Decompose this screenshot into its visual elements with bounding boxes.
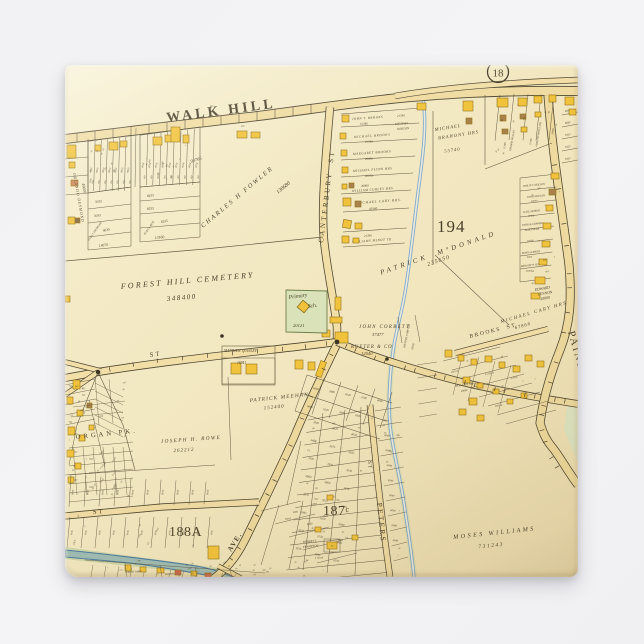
svg-text:175: 175: [253, 574, 256, 576]
svg-text:8435: 8435: [147, 193, 155, 198]
svg-text:84: 84: [253, 569, 255, 572]
svg-text:ST: ST: [149, 351, 161, 359]
svg-text:21786: 21786: [365, 139, 373, 144]
svg-text:21780: 21780: [364, 233, 372, 238]
svg-text:20121: 20121: [293, 323, 304, 328]
svg-text:45: 45: [209, 565, 211, 568]
svg-text:3035: 3035: [95, 199, 103, 204]
svg-text:JOHN CORBETT: JOHN CORBETT: [359, 325, 410, 330]
svg-text:RUETER & CO: RUETER & CO: [350, 345, 393, 350]
svg-text:3035: 3035: [94, 213, 102, 218]
svg-text:37477: 37477: [372, 332, 384, 337]
svg-text:30: 30: [178, 575, 180, 577]
svg-text:8535: 8535: [147, 206, 155, 211]
svg-text:ST: ST: [93, 508, 105, 516]
svg-text:STATION: STATION: [165, 572, 175, 576]
svg-text:45: 45: [297, 566, 299, 569]
svg-text:45: 45: [190, 566, 192, 569]
svg-text:12040: 12040: [361, 351, 373, 356]
svg-text:45: 45: [134, 562, 136, 565]
svg-text:175: 175: [119, 570, 122, 572]
svg-text:18: 18: [493, 68, 505, 80]
svg-text:188A: 188A: [169, 525, 203, 540]
svg-text:ST: ST: [366, 461, 373, 470]
svg-text:20100: 20100: [365, 173, 373, 178]
svg-text:51346: 51346: [360, 121, 368, 126]
svg-text:84: 84: [228, 564, 230, 567]
svg-text:21780: 21780: [397, 113, 405, 118]
svg-text:84: 84: [235, 567, 237, 570]
svg-text:30: 30: [191, 563, 193, 565]
svg-text:16941: 16941: [237, 361, 246, 365]
svg-text:30: 30: [269, 568, 271, 570]
svg-text:20000: 20000: [365, 156, 373, 161]
svg-text:43560: 43560: [369, 206, 378, 211]
svg-text:30: 30: [303, 575, 305, 577]
svg-text:84: 84: [186, 564, 188, 567]
svg-text:MATTHEW QUINLEY: MATTHEW QUINLEY: [223, 349, 258, 353]
svg-text:30: 30: [218, 569, 220, 571]
svg-text:45: 45: [239, 564, 241, 567]
svg-text:175: 175: [223, 562, 226, 564]
svg-text:600: 600: [138, 560, 141, 562]
svg-text:45: 45: [295, 561, 297, 564]
svg-text:600: 600: [138, 571, 141, 573]
svg-text:194: 194: [437, 217, 466, 236]
svg-text:600: 600: [266, 571, 269, 573]
svg-text:30: 30: [253, 565, 255, 567]
